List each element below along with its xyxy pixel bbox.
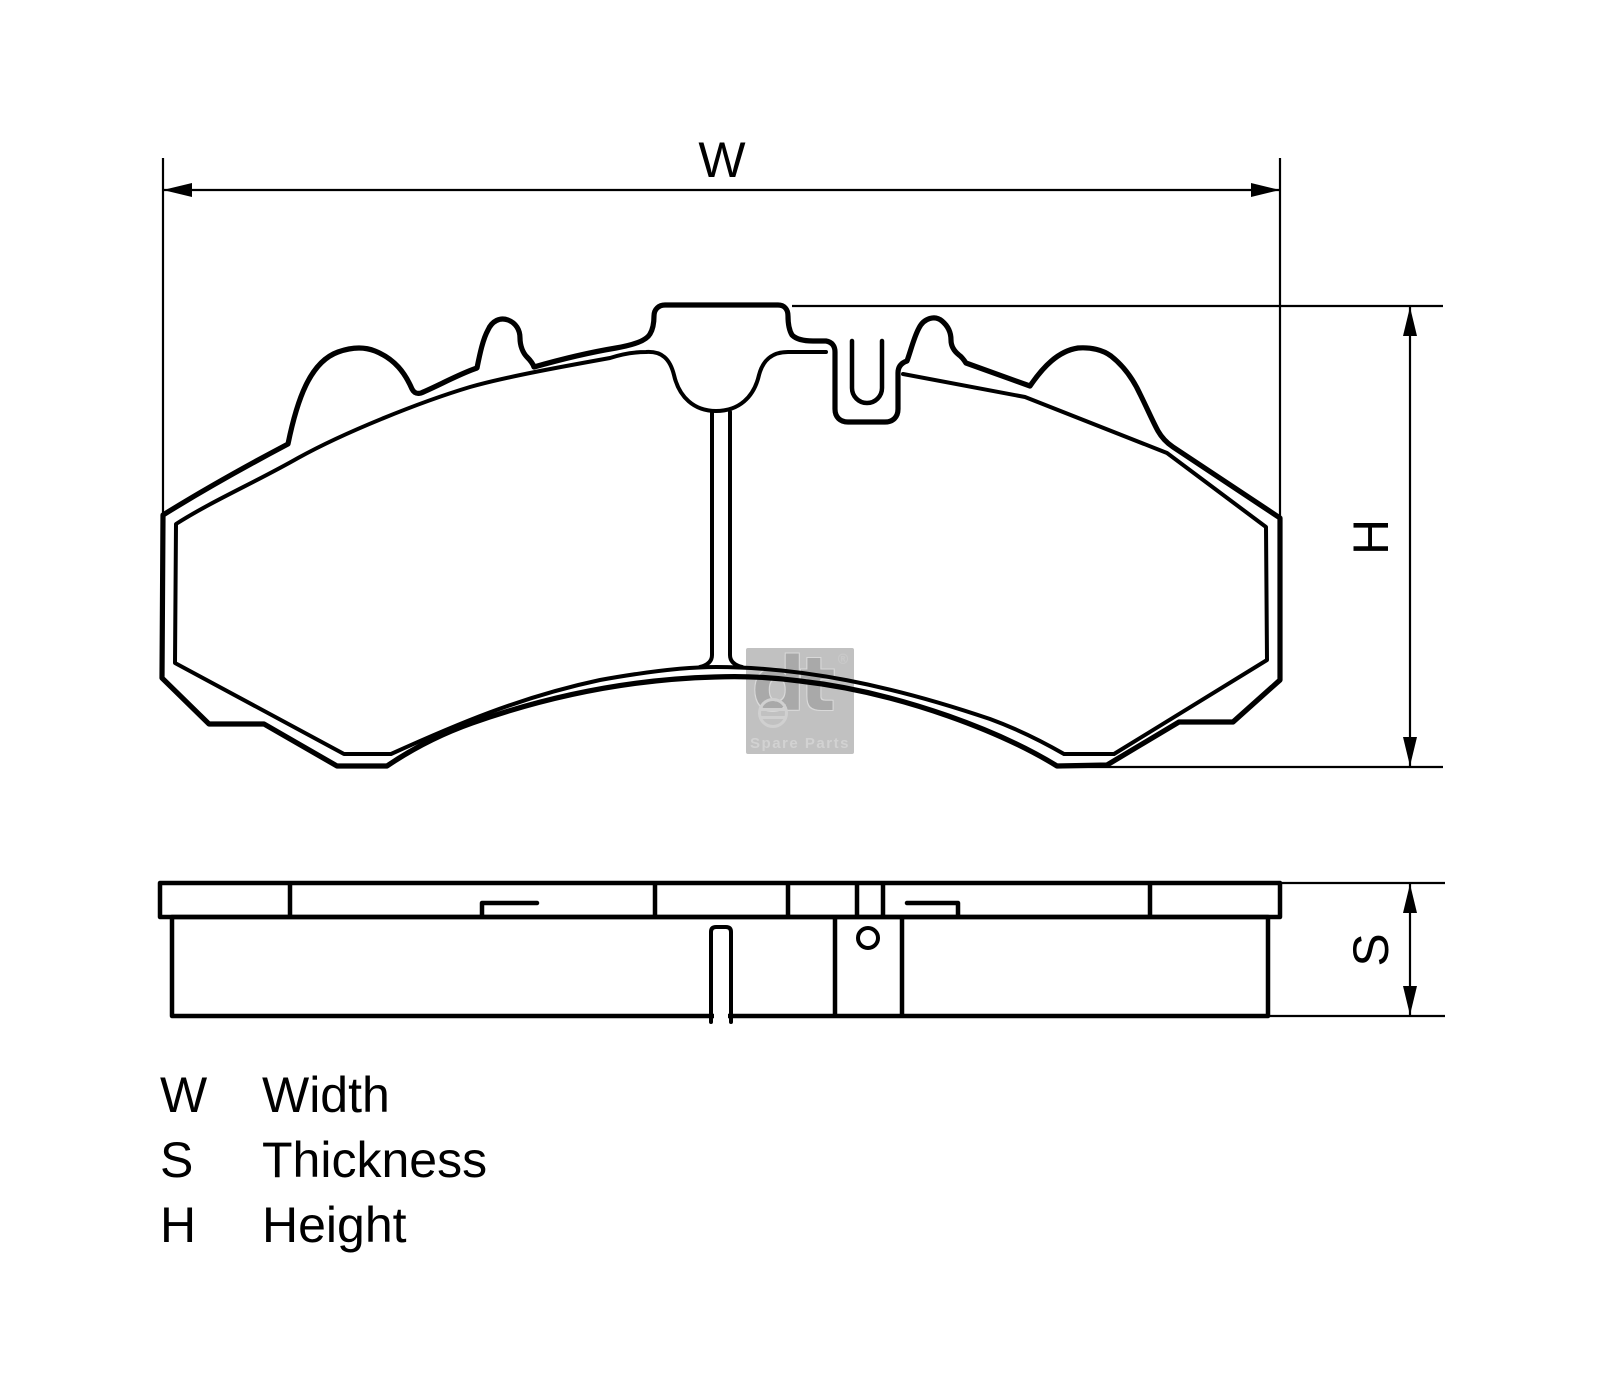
side-friction-block	[172, 917, 1268, 1016]
band-tab-left	[482, 903, 537, 916]
pad-outer-outline	[162, 305, 1280, 766]
w-arrowhead-right	[1251, 183, 1280, 197]
s-arrowhead-top	[1403, 884, 1417, 913]
legend: W Width S Thickness H Height	[160, 1063, 487, 1258]
dimension-w-label: W	[698, 132, 746, 188]
h-arrowhead-bottom	[1403, 737, 1417, 766]
s-arrowhead-bottom	[1403, 986, 1417, 1015]
front-view	[162, 305, 1280, 766]
keyhole-slot	[852, 341, 882, 403]
wear-groove	[711, 927, 731, 1022]
side-view	[160, 883, 1280, 1024]
dimension-h-label: H	[1343, 519, 1399, 555]
legend-term-width: Width	[262, 1063, 390, 1128]
h-arrowhead-top	[1403, 307, 1417, 336]
dimensions	[163, 158, 1445, 1016]
center-slot-right-line	[730, 412, 742, 667]
side-backplate-band	[160, 883, 1280, 917]
legend-row-thickness: S Thickness	[160, 1128, 487, 1193]
legend-symbol-h: H	[160, 1193, 262, 1258]
center-slot-left-line	[700, 412, 712, 667]
legend-row-height: H Height	[160, 1193, 487, 1258]
groove-gap-mask	[714, 1010, 728, 1024]
legend-term-height: Height	[262, 1193, 407, 1258]
legend-symbol-w: W	[160, 1063, 262, 1128]
legend-term-thickness: Thickness	[262, 1128, 487, 1193]
w-arrowhead-left	[163, 183, 192, 197]
legend-symbol-s: S	[160, 1128, 262, 1193]
legend-row-width: W Width	[160, 1063, 487, 1128]
pad-inner-contour	[175, 352, 1267, 754]
technical-drawing-page: dt ® Spare Parts	[0, 0, 1600, 1394]
dimension-s-label: S	[1343, 933, 1399, 966]
band-tab-right	[907, 903, 958, 916]
rivet-hole	[858, 928, 878, 948]
